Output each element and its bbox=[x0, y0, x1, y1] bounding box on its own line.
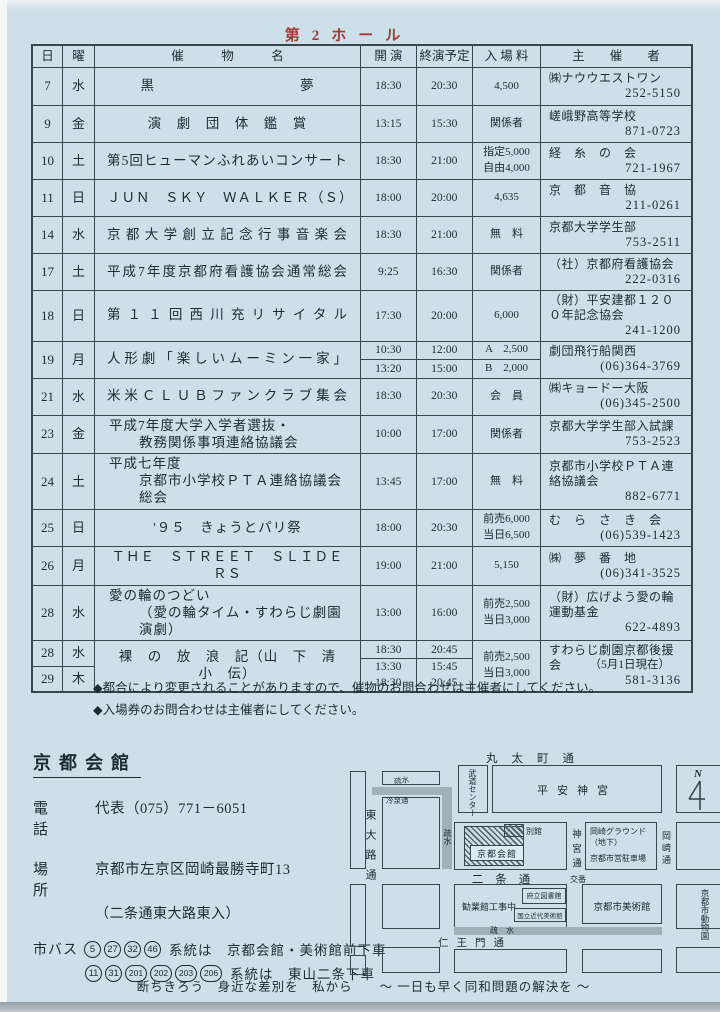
event-title-line: 京都市小学校ＰＴＡ連絡協議会総会 bbox=[95, 473, 360, 507]
fee-line: 前売2,500 bbox=[473, 650, 540, 666]
event-title-cell: 演 劇 団 体 鑑 賞 bbox=[95, 106, 361, 142]
header-event: 催 物 名 bbox=[95, 46, 361, 67]
admission-cell: 4,635 bbox=[473, 180, 541, 216]
time-pair: 13:4517:00 bbox=[361, 454, 472, 509]
organizer-name: （財）平安建都１２００年記念協会 bbox=[549, 293, 685, 323]
organizer-phone: 721-1967 bbox=[549, 161, 685, 177]
table-row: 11日ＪＵＮ ＳＫＹ ＷＡＬＫＥＲ（Ｓ）18:0020:004,635京 都 音… bbox=[33, 179, 691, 216]
header-organizer: 主 催 者 bbox=[541, 46, 691, 67]
event-title-line: 平成7年度大学入学者選抜・ bbox=[95, 418, 360, 435]
heian-shrine-label: 平安神宮 bbox=[493, 782, 661, 798]
fee-line: 4,635 bbox=[473, 190, 540, 206]
day-cell: 18日 bbox=[33, 291, 95, 341]
fee-group: 関係者 bbox=[473, 106, 540, 142]
event-title-cell: 平成7年度大学入学者選抜・教務関係事項連絡協議会 bbox=[95, 416, 361, 454]
times-cell: 13:0016:00 bbox=[361, 586, 473, 641]
admission-cell: 関係者 bbox=[473, 254, 541, 290]
time-pair: 13:3015:45 bbox=[361, 659, 472, 675]
higashioji-street-label: 東大路通 bbox=[362, 809, 378, 889]
times-cell: 17:3020:00 bbox=[361, 291, 473, 341]
table-row: 18日第１１回西川充リサイタル17:3020:006,000（財）平安建都１２０… bbox=[33, 290, 691, 341]
end-time: 16:00 bbox=[417, 586, 473, 641]
marutamachi-street-label: 丸太町通 bbox=[422, 750, 652, 766]
day-group: 7水 bbox=[33, 68, 94, 105]
end-time: 21:00 bbox=[417, 547, 473, 585]
weekday: 日 bbox=[63, 291, 94, 341]
weekday: 水 bbox=[63, 586, 94, 641]
time-group: 13:4517:00 bbox=[361, 454, 472, 509]
day-cell: 21水 bbox=[33, 379, 95, 415]
time-pair: 10:3012:00 bbox=[361, 342, 472, 360]
fee-group: A 2,500 bbox=[473, 342, 540, 360]
fee-line: 前売2,500 bbox=[473, 597, 540, 613]
organizer-name: 嵯峨野高等学校 bbox=[549, 109, 685, 124]
day-number: 18 bbox=[33, 291, 63, 341]
day-cell: 10土 bbox=[33, 143, 95, 179]
time-group: 18:3020:30 bbox=[361, 68, 472, 105]
tel-value: 代表（075）771－6051 bbox=[95, 797, 248, 839]
nijo-street-label: 二条通 bbox=[447, 871, 567, 887]
fee-group: 指定5,000自由4,000 bbox=[473, 143, 540, 179]
sosui-label: 疏水 bbox=[393, 774, 409, 787]
map-block bbox=[582, 949, 662, 973]
day-number: 28 bbox=[33, 641, 63, 665]
start-time: 18:00 bbox=[361, 180, 417, 216]
event-title-cell: 人形劇「楽しいムーミン一家」 bbox=[95, 342, 361, 378]
event-title-cell: 黒 夢 bbox=[95, 68, 361, 105]
event-title-line: 京都大学創立記念行事音楽会 bbox=[95, 227, 360, 244]
event-title-line: 平成七年度 bbox=[95, 456, 360, 473]
event-title-cell: ＪＵＮ ＳＫＹ ＷＡＬＫＥＲ（Ｓ） bbox=[95, 180, 361, 216]
time-pair: 13:1515:30 bbox=[361, 106, 472, 142]
day-cell: 9金 bbox=[33, 106, 95, 142]
fee-line: 指定5,000 bbox=[473, 145, 540, 161]
day-group: 18日 bbox=[33, 291, 94, 341]
organizer-cell: （財）平安建都１２００年記念協会241-1200 bbox=[541, 291, 691, 341]
time-pair: 10:0017:00 bbox=[361, 416, 472, 454]
map-block bbox=[382, 797, 440, 869]
day-group: 24土 bbox=[33, 454, 94, 509]
tel-label: 電 話 bbox=[33, 797, 95, 839]
start-time: 10:00 bbox=[361, 416, 417, 454]
times-cell: 18:3020:30 bbox=[361, 68, 473, 105]
organizer-phone: 622-4893 bbox=[549, 620, 685, 636]
fee-line: 6,000 bbox=[473, 308, 540, 324]
organizer-name: む ら さ き 会 bbox=[549, 513, 685, 528]
table-row: 28水愛の輪のつどい（愛の輪タイム・すわらじ劇園演劇）13:0016:00前売2… bbox=[33, 585, 691, 641]
end-time: 20:30 bbox=[417, 510, 473, 546]
day-cell: 14水 bbox=[33, 217, 95, 253]
fee-group: 関係者 bbox=[473, 416, 540, 454]
day-group: 23金 bbox=[33, 416, 94, 454]
time-pair: 18:3021:00 bbox=[361, 217, 472, 253]
time-pair: 13:2015:00 bbox=[361, 360, 472, 378]
start-time: 13:30 bbox=[361, 659, 417, 675]
table-row: 14水京都大学創立記念行事音楽会18:3021:00無 料京都大学学生部753-… bbox=[33, 216, 691, 253]
day-number: 26 bbox=[33, 547, 63, 585]
fee-group: 4,635 bbox=[473, 180, 540, 216]
as-of-date: （5月1日現在） bbox=[590, 656, 671, 672]
time-group: 13:1515:30 bbox=[361, 106, 472, 142]
event-title-cell: 第１１回西川充リサイタル bbox=[95, 291, 361, 341]
header-end: 終演予定 bbox=[417, 46, 473, 67]
table-row: 9金演 劇 団 体 鑑 賞13:1515:30関係者嵯峨野高等学校871-072… bbox=[33, 105, 691, 142]
event-title-cell: 平成7年度京都府看護協会通常総会 bbox=[95, 254, 361, 290]
times-cell: 19:0021:00 bbox=[361, 547, 473, 585]
times-cell: 18:3021:00 bbox=[361, 217, 473, 253]
sosui-canal bbox=[454, 927, 662, 935]
bus-line-1: 市バス 5273246 系統は 京都会館・美術館前下車 bbox=[33, 939, 363, 959]
organizer-phone: 222-0316 bbox=[549, 272, 685, 288]
times-cell: 18:3021:00 bbox=[361, 143, 473, 179]
kaikan-label: 京都会館 bbox=[470, 845, 524, 861]
niomon-street-label: 仁王門通 bbox=[410, 935, 540, 950]
bus-line-1-routes: 5273246 bbox=[84, 940, 164, 958]
organizer-cell: （財）広げよう愛の輪運動基金622-4893 bbox=[541, 586, 691, 641]
organizer-name: 京都大学学生部入試課 bbox=[549, 419, 685, 434]
momak-label: 国立近代美術館 bbox=[514, 908, 566, 922]
fee-line: 関係者 bbox=[473, 427, 540, 443]
time-group: 18:3021:00 bbox=[361, 143, 472, 179]
fee-line: 関係者 bbox=[473, 116, 540, 132]
sosui-canal bbox=[372, 787, 452, 795]
weekday: 水 bbox=[63, 641, 94, 665]
organizer-phone: 241-1200 bbox=[549, 323, 685, 339]
event-title-line: ＪＵＮ ＳＫＹ ＷＡＬＫＥＲ（Ｓ） bbox=[95, 190, 360, 207]
time-group: 19:0021:00 bbox=[361, 547, 472, 585]
admission-cell: 前売6,000当日6,500 bbox=[473, 510, 541, 546]
time-group: 13:2015:00 bbox=[361, 359, 472, 378]
organizer-phone: 753-2523 bbox=[549, 434, 685, 450]
start-time: 17:30 bbox=[361, 291, 417, 341]
organizer-phone: (06)345-2500 bbox=[549, 396, 685, 412]
fee-line: 4,500 bbox=[473, 79, 540, 95]
organizer-name: 京 都 音 協 bbox=[549, 183, 685, 198]
end-time: 20:00 bbox=[417, 291, 473, 341]
day-number: 19 bbox=[33, 342, 63, 378]
day-number: 11 bbox=[33, 180, 63, 216]
notes: ◆都合により変更されることがありますので、催物のお問合わせは主催者にしてください… bbox=[93, 678, 601, 722]
end-time: 20:00 bbox=[417, 180, 473, 216]
organizer-cell: 劇団飛行船関西(06)364-3769 bbox=[541, 342, 691, 378]
weekday: 土 bbox=[63, 254, 94, 290]
start-time: 13:00 bbox=[361, 586, 417, 641]
day-number: 23 bbox=[33, 416, 63, 454]
weekday: 日 bbox=[63, 510, 94, 546]
organizer-cell: ㈱ナウウエストワン252-5150 bbox=[541, 68, 691, 105]
museum-label: 京都市美術館 bbox=[583, 899, 661, 913]
map-block bbox=[676, 947, 720, 973]
budo-center-label: 武道センター bbox=[467, 769, 478, 817]
table-row: 25日'９５ きょうとパリ祭18:0020:30前売6,000当日6,500む … bbox=[33, 509, 691, 546]
header-start: 開 演 bbox=[361, 46, 417, 67]
times-cell: 18:0020:00 bbox=[361, 180, 473, 216]
day-group: 28水 bbox=[33, 641, 94, 665]
day-group: 21水 bbox=[33, 379, 94, 415]
organizer-name: 京都市小学校ＰＴＡ連絡協議会 bbox=[549, 459, 685, 489]
time-group: 18:0020:30 bbox=[361, 510, 472, 546]
end-time: 20:30 bbox=[417, 68, 473, 105]
weekday: 土 bbox=[63, 454, 94, 509]
day-number: 14 bbox=[33, 217, 63, 253]
organizer-cell: 経 糸 の 会721-1967 bbox=[541, 143, 691, 179]
day-cell: 26月 bbox=[33, 547, 95, 585]
day-cell: 25日 bbox=[33, 510, 95, 546]
start-time: 18:30 bbox=[361, 641, 417, 658]
reisen-street-label: 冷泉通 bbox=[386, 795, 409, 806]
day-cell: 24土 bbox=[33, 454, 95, 509]
jingu-street-label: 神宮通 bbox=[568, 829, 582, 873]
end-time: 17:00 bbox=[417, 416, 473, 454]
event-title-line: 第１１回西川充リサイタル bbox=[95, 307, 360, 324]
day-cell: 11日 bbox=[33, 180, 95, 216]
weekday: 金 bbox=[63, 416, 94, 454]
end-time: 20:45 bbox=[417, 641, 473, 658]
event-title-cell: 米米ＣＬＵＢファンクラブ集会 bbox=[95, 379, 361, 415]
header-day: 日 bbox=[33, 46, 63, 67]
sosui-label: 疏水 bbox=[442, 829, 453, 845]
parking-block: 岡崎グラウンド （地下） 京都市営駐車場 bbox=[585, 822, 657, 870]
day-group: 26月 bbox=[33, 547, 94, 585]
end-time: 15:00 bbox=[417, 360, 473, 378]
table-row: 10土第5回ヒューマンふれあいコンサート18:3021:00指定5,000自由4… bbox=[33, 142, 691, 179]
weekday: 水 bbox=[63, 217, 94, 253]
fee-group: 関係者 bbox=[473, 254, 540, 290]
address-note: （二条通東大路東入） bbox=[95, 903, 363, 923]
organizer-name: （財）広げよう愛の輪運動基金 bbox=[549, 590, 685, 620]
organizer-name: 経 糸 の 会 bbox=[549, 146, 685, 161]
day-group: 14水 bbox=[33, 217, 94, 253]
day-group: 17土 bbox=[33, 254, 94, 290]
map-block bbox=[350, 955, 366, 975]
organizer-name: ㈱ナウウエストワン bbox=[549, 71, 685, 86]
organizer-cell: ㈱キョードー大阪(06)345-2500 bbox=[541, 379, 691, 415]
organizer-phone: (06)539-1423 bbox=[549, 528, 685, 544]
fee-group: 6,000 bbox=[473, 291, 540, 341]
okazaki-ground-label: 岡崎グラウンド bbox=[590, 826, 646, 837]
admission-cell: 関係者 bbox=[473, 416, 541, 454]
end-time: 17:00 bbox=[417, 454, 473, 509]
fee-line: 無 料 bbox=[473, 227, 540, 243]
day-group: 28水 bbox=[33, 586, 94, 641]
start-time: 18:30 bbox=[361, 68, 417, 105]
organizer-name: ㈱キョードー大阪 bbox=[549, 381, 685, 396]
bekkan-building bbox=[504, 824, 524, 837]
time-pair: 18:0020:30 bbox=[361, 510, 472, 546]
organizer-cell: む ら さ き 会(06)539-1423 bbox=[541, 510, 691, 546]
fee-group: 無 料 bbox=[473, 454, 540, 509]
map-block bbox=[382, 771, 440, 785]
admission-cell: 無 料 bbox=[473, 454, 541, 509]
organizer-phone: 252-5150 bbox=[549, 86, 685, 102]
times-cell: 10:0017:00 bbox=[361, 416, 473, 454]
day-number: 17 bbox=[33, 254, 63, 290]
table-row: 24土平成七年度京都市小学校ＰＴＡ連絡協議会総会13:4517:00無 料京都市… bbox=[33, 453, 691, 509]
admission-cell: 関係者 bbox=[473, 106, 541, 142]
time-group: 18:0020:00 bbox=[361, 180, 472, 216]
schedule-body: 7水黒 夢18:3020:304,500㈱ナウウエストワン252-51509金演… bbox=[33, 68, 691, 691]
day-cell: 17土 bbox=[33, 254, 95, 290]
fee-line: 関係者 bbox=[473, 264, 540, 280]
organizer-cell: 京都大学学生部入試課753-2523 bbox=[541, 416, 691, 454]
scanned-flyer-page: 第2ホール 日 曜 催 物 名 開 演 終演予定 入 場 料 主 催 者 7水黒… bbox=[0, 0, 720, 1012]
times-cell: 13:1515:30 bbox=[361, 106, 473, 142]
times-cell: 18:0020:30 bbox=[361, 510, 473, 546]
times-cell: 10:3012:0013:2015:00 bbox=[361, 342, 473, 378]
day-number: 28 bbox=[33, 586, 63, 641]
event-title-line: 平成7年度京都府看護協会通常総会 bbox=[95, 264, 360, 281]
bus-route-number: 27 bbox=[104, 941, 121, 958]
fee-group: 無 料 bbox=[473, 217, 540, 253]
schedule-table: 日 曜 催 物 名 開 演 終演予定 入 場 料 主 催 者 7水黒 夢18:3… bbox=[31, 44, 693, 693]
times-cell: 13:4517:00 bbox=[361, 454, 473, 509]
event-title-cell: '９５ きょうとパリ祭 bbox=[95, 510, 361, 546]
organizer-phone: 753-2511 bbox=[549, 235, 685, 251]
organizer-name: 京都大学学生部 bbox=[549, 220, 685, 235]
day-number: 24 bbox=[33, 454, 63, 509]
start-time: 13:15 bbox=[361, 106, 417, 142]
event-title-line: 演 劇 団 体 鑑 賞 bbox=[95, 116, 360, 133]
event-title-line: 愛の輪のつどい bbox=[95, 588, 360, 605]
fee-group: 会 員 bbox=[473, 379, 540, 415]
heian-shrine-block: 平安神宮 bbox=[492, 765, 662, 813]
compass-block: N bbox=[676, 765, 720, 813]
organizer-phone: 882-6771 bbox=[549, 489, 685, 505]
admission-cell: 5,150 bbox=[473, 547, 541, 585]
day-group: 25日 bbox=[33, 510, 94, 546]
map-block bbox=[676, 822, 720, 870]
fee-group: 4,500 bbox=[473, 68, 540, 105]
day-number: 7 bbox=[33, 68, 63, 105]
time-group: 10:0017:00 bbox=[361, 416, 472, 454]
admission-cell: A 2,500B 2,000 bbox=[473, 342, 541, 378]
organizer-phone: (06)341-3525 bbox=[549, 566, 685, 582]
end-time: 15:45 bbox=[417, 659, 473, 675]
time-pair: 18:3021:00 bbox=[361, 143, 472, 179]
day-number: 21 bbox=[33, 379, 63, 415]
map-block bbox=[382, 947, 440, 973]
zoo-label: 京都市動物園 bbox=[689, 889, 711, 927]
event-title-line: （愛の輪タイム・すわらじ劇園演劇） bbox=[95, 605, 360, 639]
day-number: 25 bbox=[33, 510, 63, 546]
fee-group: 5,150 bbox=[473, 547, 540, 585]
start-time: 9:25 bbox=[361, 254, 417, 290]
weekday: 水 bbox=[63, 68, 94, 105]
weekday: 水 bbox=[63, 379, 94, 415]
time-group: 13:0016:00 bbox=[361, 586, 472, 641]
organizer-phone: 211-0261 bbox=[549, 198, 685, 214]
organizer-cell: 京都大学学生部753-2511 bbox=[541, 217, 691, 253]
note-line: ◆入場券のお問合わせは主催者にしてください。 bbox=[93, 700, 601, 722]
start-time: 18:00 bbox=[361, 510, 417, 546]
day-group: 29木 bbox=[33, 666, 94, 691]
event-title-line: 人形劇「楽しいムーミン一家」 bbox=[95, 351, 360, 368]
event-title-line: 教務関係事項連絡協議会 bbox=[95, 435, 360, 452]
venue-place-row: 場 所 京都市左京区岡崎最勝寺町13 bbox=[33, 858, 363, 900]
day-cell: 28水29木 bbox=[33, 641, 95, 691]
fee-line: B 2,000 bbox=[473, 361, 540, 377]
admission-cell: 指定5,000自由4,000 bbox=[473, 143, 541, 179]
time-pair: 18:3020:30 bbox=[361, 68, 472, 105]
parking-label: 京都市営駐車場 bbox=[590, 853, 646, 864]
fee-line: A 2,500 bbox=[473, 342, 540, 358]
day-group: 11日 bbox=[33, 180, 94, 216]
end-time: 21:00 bbox=[417, 143, 473, 179]
bus-route-number: 32 bbox=[124, 941, 141, 958]
day-number: 9 bbox=[33, 106, 63, 142]
table-row: 21水米米ＣＬＵＢファンクラブ集会18:3020:30会 員㈱キョードー大阪(0… bbox=[33, 378, 691, 415]
fee-line: 5,150 bbox=[473, 558, 540, 574]
admission-cell: 4,500 bbox=[473, 68, 541, 105]
weekday: 日 bbox=[63, 180, 94, 216]
table-row: 7水黒 夢18:3020:304,500㈱ナウウエストワン252-5150 bbox=[33, 68, 691, 105]
weekday: 土 bbox=[63, 143, 94, 179]
times-cell: 18:3020:30 bbox=[361, 379, 473, 415]
bekkan-label: 別館 bbox=[526, 826, 542, 837]
scan-edge-bottom bbox=[0, 1002, 720, 1012]
organizer-name: （社）京都府看護協会 bbox=[549, 257, 685, 272]
fee-group: B 2,000 bbox=[473, 359, 540, 378]
event-title-cell: 愛の輪のつどい（愛の輪タイム・すわらじ劇園演劇） bbox=[95, 586, 361, 641]
time-group: 9:2516:30 bbox=[361, 254, 472, 290]
organizer-cell: 京都市小学校ＰＴＡ連絡協議会882-6771 bbox=[541, 454, 691, 509]
end-time: 20:30 bbox=[417, 379, 473, 415]
access-map: 武道センター 平安神宮 N 別館 京都会館 岡崎グラウンド bbox=[352, 737, 720, 973]
day-group: 19月 bbox=[33, 342, 94, 378]
time-group: 18:3020:45 bbox=[361, 641, 472, 658]
note-line: ◆都合により変更されることがありますので、催物のお問合わせは主催者にしてください… bbox=[93, 678, 601, 700]
venue-info: 京都会館 電 話 代表（075）771－6051 場 所 京都市左京区岡崎最勝寺… bbox=[33, 749, 363, 983]
start-time: 18:30 bbox=[361, 217, 417, 253]
organizer-name: 劇団飛行船関西 bbox=[549, 344, 685, 359]
day-number: 29 bbox=[33, 667, 63, 691]
table-row: 19月人形劇「楽しいムーミン一家」10:3012:0013:2015:00A 2… bbox=[33, 341, 691, 378]
organizer-cell: 京 都 音 協211-0261 bbox=[541, 180, 691, 216]
fee-group: 前売2,500当日3,000 bbox=[473, 586, 540, 641]
header-weekday: 曜 bbox=[63, 46, 95, 67]
day-cell: 7水 bbox=[33, 68, 95, 105]
event-title-cell: 平成七年度京都市小学校ＰＴＡ連絡協議会総会 bbox=[95, 454, 361, 509]
end-time: 12:00 bbox=[417, 342, 473, 360]
time-pair: 18:3020:45 bbox=[361, 641, 472, 658]
table-row: 17土平成7年度京都府看護協会通常総会9:2516:30関係者（社）京都府看護協… bbox=[33, 253, 691, 290]
fee-line: 前売6,000 bbox=[473, 512, 540, 528]
table-row: 26月ＴＨＥ ＳＴＲＥＥＴ ＳＬＩＤＥＲＳ19:0021:005,150㈱ 夢 … bbox=[33, 546, 691, 585]
fee-group: 前売6,000当日6,500 bbox=[473, 510, 540, 546]
museum-block: 京都市美術館 bbox=[582, 884, 662, 924]
day-cell: 23金 bbox=[33, 416, 95, 454]
organizer-cell: ㈱ 夢 番 地(06)341-3525 bbox=[541, 547, 691, 585]
budo-center-block: 武道センター bbox=[458, 765, 488, 813]
scan-edge-left bbox=[0, 0, 7, 1012]
event-title-cell: 第5回ヒューマンふれあいコンサート bbox=[95, 143, 361, 179]
organizer-cell: （社）京都府看護協会222-0316 bbox=[541, 254, 691, 290]
table-row: 23金平成7年度大学入学者選抜・教務関係事項連絡協議会10:0017:00関係者… bbox=[33, 415, 691, 454]
paper: 第2ホール 日 曜 催 物 名 開 演 終演予定 入 場 料 主 催 者 7水黒… bbox=[7, 4, 720, 1002]
slogan: 断ちきろう 身近な差別を 私から ～ 一日も早く同和問題の解決を ～ bbox=[7, 976, 720, 995]
start-time: 18:30 bbox=[361, 379, 417, 415]
time-group: 18:3020:30 bbox=[361, 379, 472, 415]
day-group: 10土 bbox=[33, 143, 94, 179]
admission-cell: 無 料 bbox=[473, 217, 541, 253]
compass-arrow-icon bbox=[683, 777, 713, 811]
end-time: 21:00 bbox=[417, 217, 473, 253]
bus-route-number: 5 bbox=[84, 941, 101, 958]
place-label: 場 所 bbox=[33, 858, 95, 900]
event-title-line: 黒 夢 bbox=[95, 78, 360, 95]
weekday: 木 bbox=[63, 667, 94, 691]
map-block bbox=[382, 884, 440, 929]
